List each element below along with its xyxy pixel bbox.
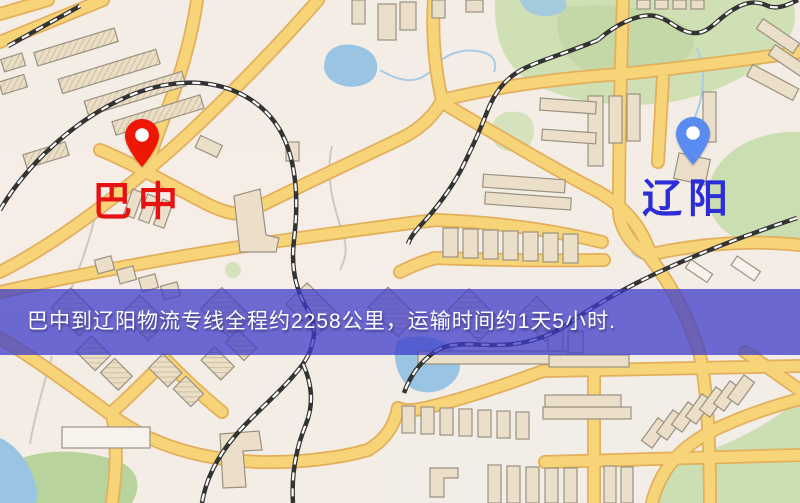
route-info-banner: 巴中到辽阳物流专线全程约2258公里，运输时间约1天5小时. — [0, 289, 800, 355]
map-canvas[interactable]: 巴中 辽阳 巴中到辽阳物流专线全程约2258公里，运输时间约1天5小时. — [0, 0, 800, 503]
route-info-text: 巴中到辽阳物流专线全程约2258公里，运输时间约1天5小时. — [0, 289, 800, 355]
origin-city-label: 巴中 — [92, 182, 184, 222]
destination-city-label: 辽阳 — [642, 179, 734, 219]
basemap — [0, 0, 800, 503]
origin-pin-icon[interactable] — [125, 119, 159, 167]
destination-pin-icon[interactable] — [676, 117, 710, 165]
